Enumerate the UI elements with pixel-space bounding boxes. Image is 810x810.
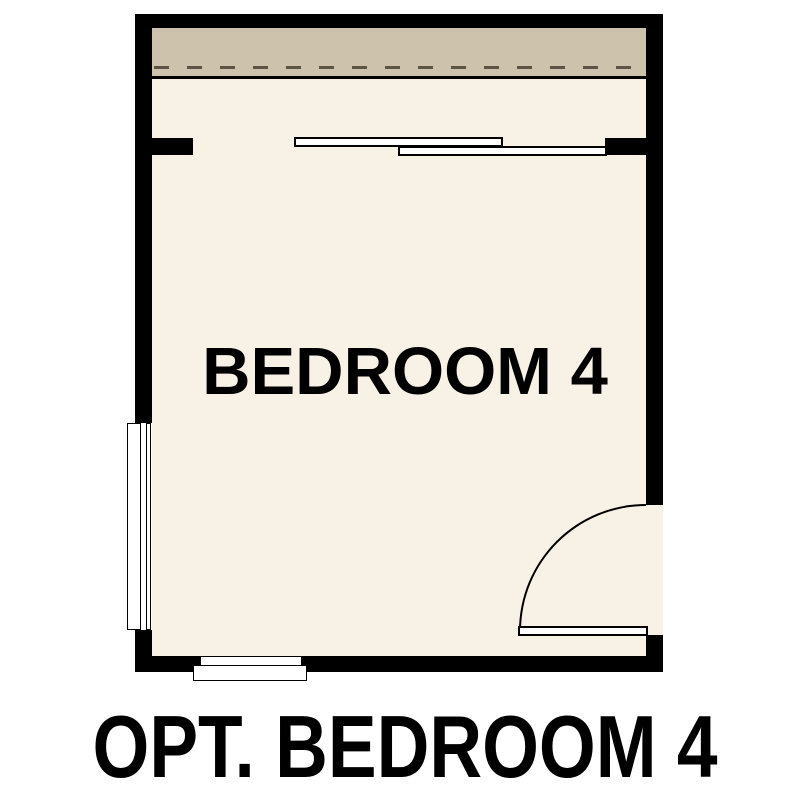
door-leaf-icon [518,626,648,636]
window-icon-bottom-sill [193,665,307,681]
wall-top [135,14,663,28]
room-label: BEDROOM 4 [0,338,810,405]
closet-wall-stub-right [605,138,646,155]
door-opening-floor [646,505,663,635]
roof-dashed-line-icon [154,66,646,69]
bypass-door-panel-icon [398,146,607,156]
plan-caption: OPT. BEDROOM 4 [69,703,741,791]
window-icon-left [127,423,151,630]
wall-right-upper [646,14,663,505]
closet-wall-stub-left [152,138,193,155]
window-glass-line-icon [140,423,147,630]
floorplan-canvas: BEDROOM 4 OPT. BEDROOM 4 [0,0,810,810]
